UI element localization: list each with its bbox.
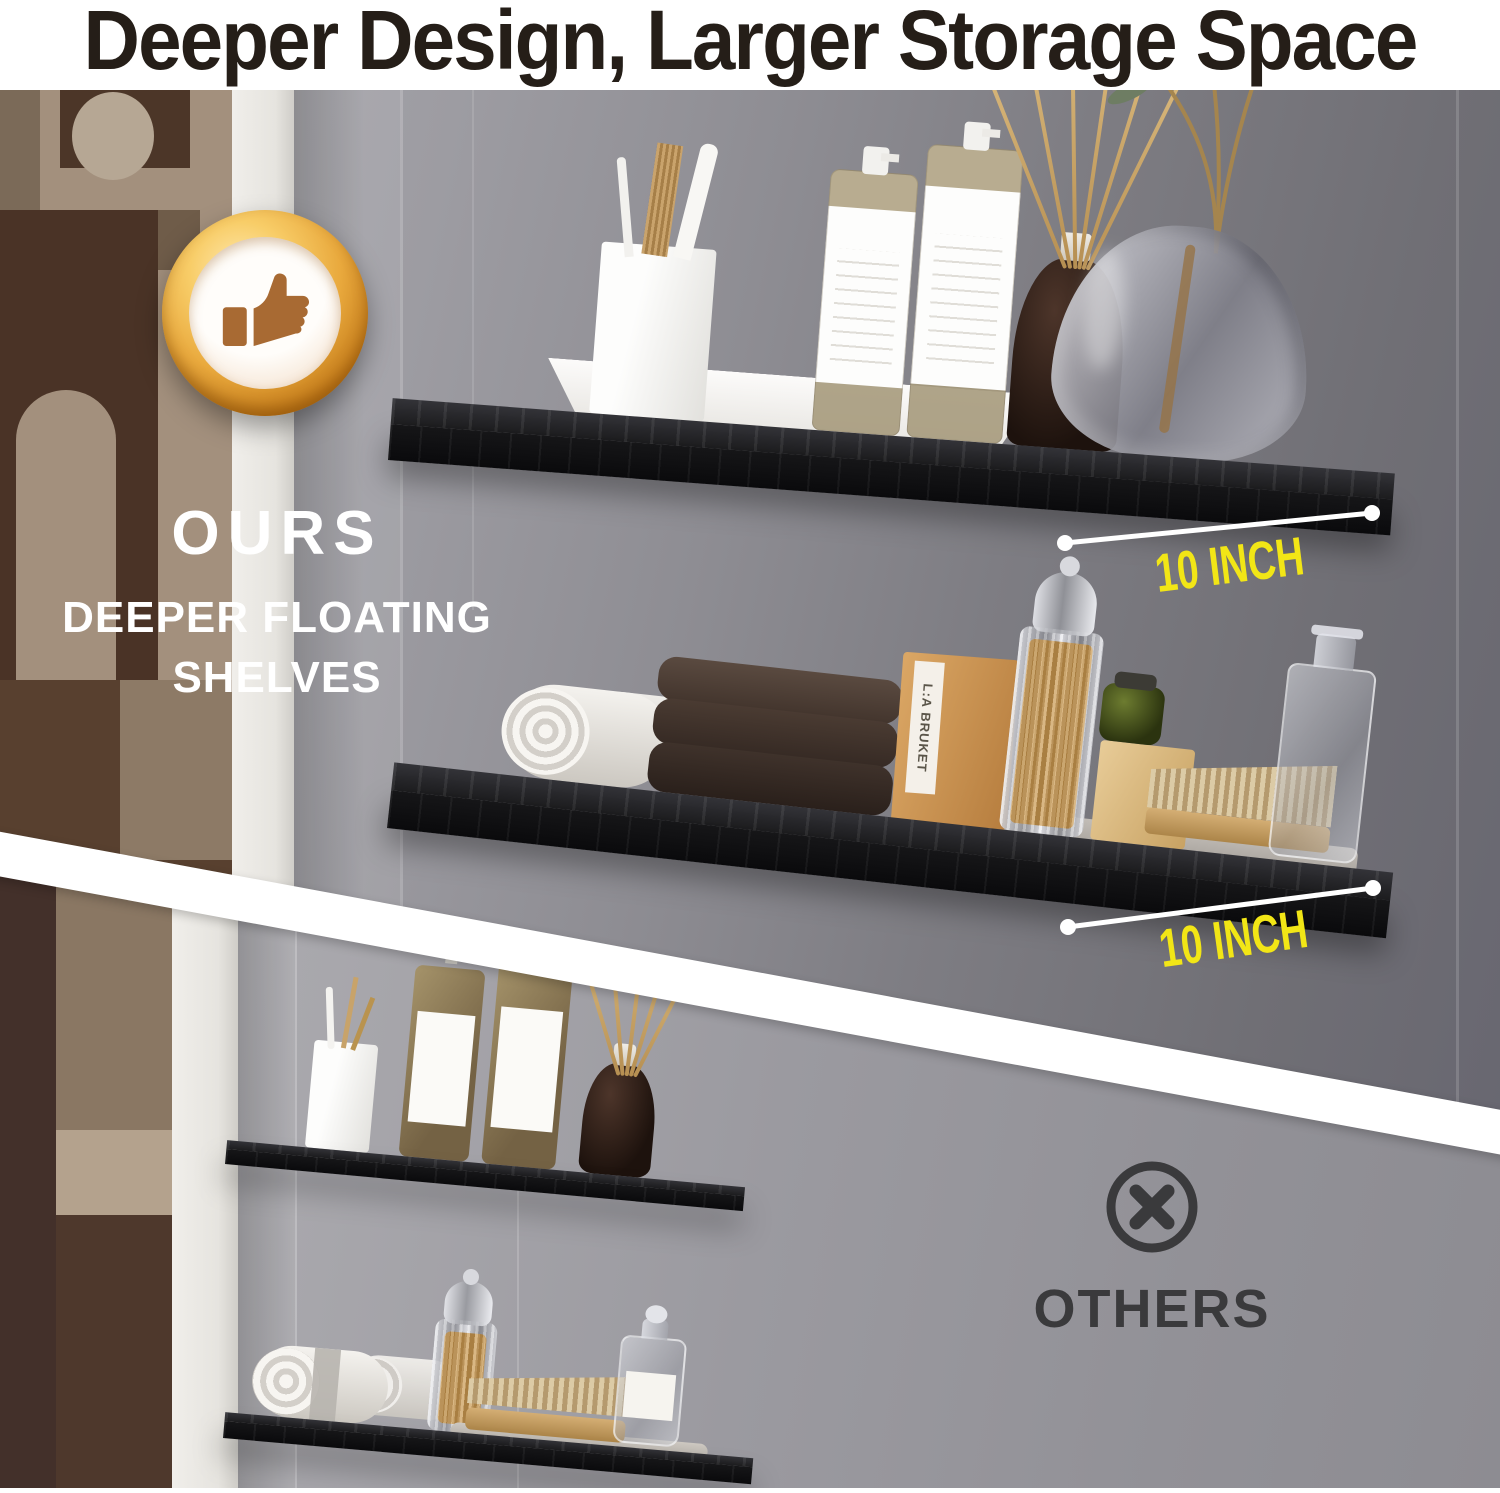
rolled-towel	[253, 1343, 391, 1426]
ours-top-shelf	[388, 90, 1425, 535]
wooden-brush	[465, 1363, 630, 1443]
bottom-margin	[0, 1488, 1500, 1493]
toothbrush-cup	[305, 1040, 379, 1153]
circle-x-icon	[1102, 1157, 1202, 1257]
headline-title: Deeper Design, Larger Storage Space	[53, 0, 1448, 89]
kraft-box: L:A BRUKET	[891, 652, 1019, 830]
soap-bottle	[481, 956, 574, 1170]
others-lower-thin-shelf	[223, 1259, 767, 1485]
apothecary-jar	[999, 625, 1105, 838]
glass-bottle	[1267, 662, 1377, 865]
product-ad-image: Deeper Design, Larger Storage Space	[0, 0, 1500, 1493]
green-glass-jar	[1098, 682, 1166, 746]
glass-bottle	[612, 1334, 687, 1447]
soap-bottle	[398, 964, 485, 1162]
others-label: OTHERS	[1002, 1278, 1302, 1340]
reed-diffuser-small	[578, 1060, 660, 1178]
kraft-box-brand: L:A BRUKET	[914, 683, 936, 773]
folded-brown-towels	[646, 659, 904, 817]
thumbs-up-badge	[162, 210, 368, 416]
toothbrush-cup	[589, 241, 717, 421]
thumbs-up-icon	[208, 256, 322, 370]
